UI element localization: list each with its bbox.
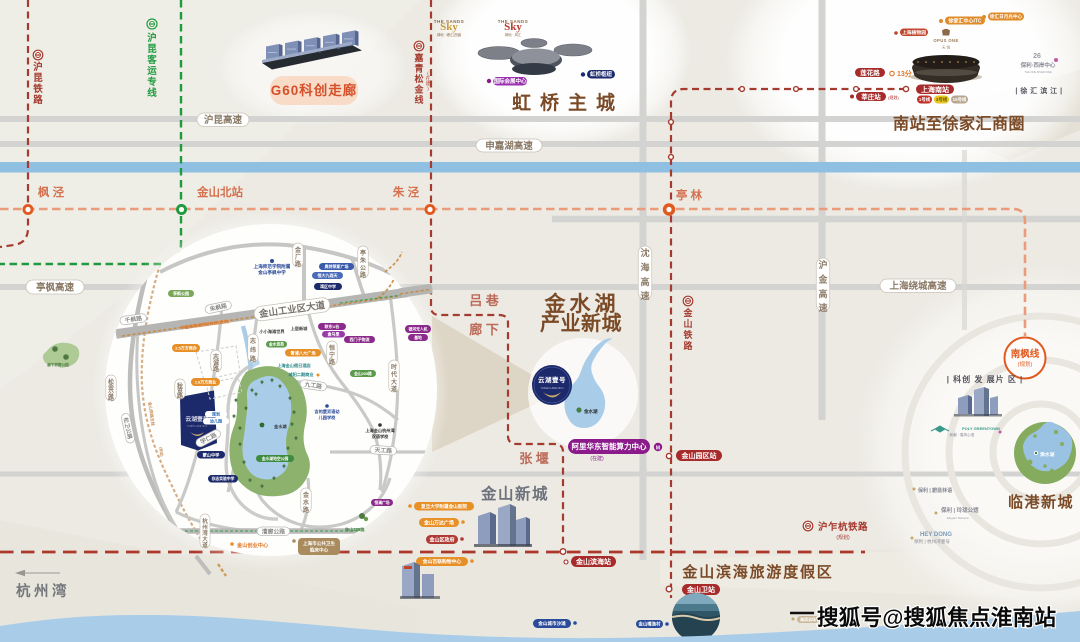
svg-text:金山万达广场: 金山万达广场 — [423, 519, 454, 526]
svg-text:M: M — [656, 446, 660, 452]
svg-text:金山创业中心: 金山创业中心 — [236, 541, 269, 549]
svg-text:莲花路: 莲花路 — [860, 68, 880, 77]
svg-text:幼儿园: 幼儿园 — [210, 418, 222, 424]
svg-text:绿地 · 风汇: 绿地 · 风汇 — [505, 32, 522, 37]
svg-text:Sky: Sky — [440, 21, 458, 33]
svg-text:恒澜广场: 恒澜广场 — [374, 500, 389, 505]
svg-text:莘庄站: 莘庄站 — [861, 92, 881, 101]
svg-text:金山卫站: 金山卫站 — [686, 585, 715, 594]
svg-text:复旦大学附属金山医院: 复旦大学附属金山医院 — [420, 503, 467, 510]
svg-text:申嘉湖高速: 申嘉湖高速 — [485, 140, 533, 152]
svg-text:(规划): (规划) — [1018, 360, 1033, 368]
svg-text:存志实验中学: 存志实验中学 — [211, 476, 235, 481]
svg-text:HEY DONG: HEY DONG — [920, 532, 952, 538]
svg-text:金山新城: 金山新城 — [480, 484, 549, 503]
svg-text:搜狐号@搜狐焦点淮南站: 搜狐号@搜狐焦点淮南站 — [817, 605, 1056, 630]
svg-text:金山嘴渔村: 金山嘴渔村 — [638, 621, 662, 628]
svg-text:沪昆高速: 沪昆高速 — [204, 114, 243, 126]
svg-text:保利 | 玲珑公馆: 保利 | 玲珑公馆 — [940, 506, 979, 514]
svg-text:临床中心: 临床中心 — [310, 547, 329, 554]
svg-text:金水湖: 金水湖 — [583, 408, 598, 415]
svg-text:沪昆客运专线: 沪昆客运专线 — [146, 32, 157, 99]
svg-text:POLY GREENTOWN: POLY GREENTOWN — [962, 426, 1000, 431]
svg-text:G60科创走廊: G60科创走廊 — [271, 82, 358, 98]
svg-text:盒马里: 盒马里 — [328, 331, 340, 337]
svg-text:西门子物流: 西门子物流 — [350, 336, 370, 342]
svg-text:| 徐 汇 滨 江 |: | 徐 汇 滨 江 | — [1015, 86, 1062, 95]
svg-text:13分: 13分 — [897, 69, 912, 78]
svg-text:保利 | 蔚蓝林语: 保利 | 蔚蓝林语 — [917, 487, 952, 494]
svg-text:青浦八大广场: 青浦八大广场 — [290, 349, 316, 356]
svg-text:滴水湖: 滴水湖 — [1039, 451, 1055, 458]
svg-text:天 悦: 天 悦 — [942, 45, 951, 50]
svg-text:绿地 · 峰汇|西宸: 绿地 · 峰汇|西宸 — [437, 32, 462, 37]
svg-text:亭 林: 亭 林 — [676, 188, 703, 202]
svg-text:杭州湾: 杭州湾 — [16, 582, 70, 600]
svg-text:规划: 规划 — [211, 411, 220, 417]
svg-text:虹桥主城: 虹桥主城 — [512, 91, 624, 114]
svg-text:金山区政府: 金山区政府 — [428, 536, 454, 543]
svg-text:联东U谷: 联东U谷 — [325, 323, 341, 329]
svg-text:和著 · 春风心语: 和著 · 春风心语 — [950, 432, 975, 437]
svg-text:吉的堡双语幼: 吉的堡双语幼 — [314, 408, 339, 415]
svg-text:张 堰: 张 堰 — [519, 451, 549, 466]
svg-text:| 科创 发 展片 区 |: | 科创 发 展片 区 | — [947, 374, 1024, 384]
svg-text:秋览路: 秋览路 — [177, 382, 184, 400]
svg-text:临港新城: 临港新城 — [1008, 493, 1074, 511]
svg-text:国际会展中心: 国际会展中心 — [493, 77, 527, 85]
svg-text:上海植物园: 上海植物园 — [902, 29, 926, 36]
svg-text:吕 巷: 吕 巷 — [469, 293, 500, 308]
svg-text:朱 泾: 朱 泾 — [392, 185, 420, 199]
svg-text:YUNHU LAKE NO.1: YUNHU LAKE NO.1 — [540, 386, 564, 390]
svg-text:志诚路: 志诚路 — [213, 353, 220, 373]
svg-text:金山亭枫中学: 金山亭枫中学 — [257, 269, 286, 276]
svg-text:沪乍杭铁路: 沪乍杭铁路 — [818, 521, 868, 533]
svg-text:徐家汇中心ITC: 徐家汇中心ITC — [947, 17, 981, 24]
svg-text:金山北站: 金山北站 — [196, 185, 243, 199]
svg-text:上海绕城高速: 上海绕城高速 — [889, 280, 947, 292]
svg-text:南站至徐家汇商圈: 南站至徐家汇商圈 — [893, 114, 1025, 133]
svg-text:产业新城: 产业新城 — [540, 311, 622, 335]
svg-text:亭枫公园: 亭枫公园 — [173, 290, 189, 296]
svg-text:恒宁路: 恒宁路 — [329, 344, 336, 366]
svg-text:时代大道: 时代大道 — [390, 363, 397, 393]
svg-text:1号线: 1号线 — [919, 96, 931, 103]
svg-text:基地: 基地 — [413, 335, 422, 340]
svg-text:(规划): (规划) — [836, 534, 850, 541]
svg-text:恒大九珑天: 恒大九珑天 — [318, 272, 339, 278]
svg-text:小小海滩世界: 小小海滩世界 — [259, 328, 285, 335]
svg-text:金水湖地空公园: 金水湖地空公园 — [261, 456, 289, 461]
svg-text:金山滨海旅游度假区: 金山滨海旅游度假区 — [681, 563, 833, 581]
svg-text:城阳二期商业: 城阳二期商业 — [288, 371, 314, 378]
svg-text:廊 下: 廊 下 — [469, 322, 499, 337]
svg-text:上海师范学院附属: 上海师范学院附属 — [254, 263, 291, 270]
svg-text:湾区中学: 湾区中学 — [320, 283, 336, 289]
svg-text:双语学校: 双语学校 — [372, 433, 390, 440]
svg-text:金水湖: 金水湖 — [273, 423, 287, 430]
svg-text:蒙山中学: 蒙山中学 — [203, 451, 221, 458]
svg-text:漕廊公路: 漕廊公路 — [261, 527, 285, 535]
svg-text:(在建): (在建) — [590, 455, 604, 462]
svg-text:3号线: 3号线 — [936, 96, 948, 103]
svg-text:保利 | 杭州湾壹号: 保利 | 杭州湾壹号 — [914, 538, 950, 545]
svg-text:2.8万方商业: 2.8万方商业 — [195, 378, 217, 384]
svg-text:廊下郊野公园: 廊下郊野公园 — [47, 362, 69, 367]
svg-text:金山百联购物中心: 金山百联购物中心 — [422, 558, 462, 565]
svg-text:金水路: 金水路 — [302, 491, 310, 514]
svg-text:26: 26 — [1033, 53, 1041, 60]
svg-text:朱山208路: 朱山208路 — [345, 526, 365, 533]
svg-text:虹桥枢纽: 虹桥枢纽 — [590, 70, 613, 78]
svg-text:松金公路: 松金公路 — [107, 378, 115, 402]
svg-text:金山园区站: 金山园区站 — [681, 451, 717, 460]
svg-text:上海南站: 上海南站 — [921, 85, 949, 94]
svg-text:徐汇日月光中心: 徐汇日月光中心 — [989, 13, 1023, 20]
svg-text:Elegant Mansion: Elegant Mansion — [947, 516, 970, 520]
svg-text:15号线: 15号线 — [953, 96, 967, 103]
svg-text:上居新城: 上居新城 — [291, 325, 309, 332]
svg-text:嘉青松金线: 嘉青松金线 — [413, 52, 424, 105]
svg-text:YUNHU LAKE NO.1: YUNHU LAKE NO.1 — [187, 425, 208, 428]
svg-text:南枫线: 南枫线 — [1011, 348, 1040, 360]
svg-text:金山滨海站: 金山滨海站 — [575, 557, 611, 566]
svg-text:(规划): (规划) — [888, 94, 899, 100]
svg-text:儿园学校: 儿园学校 — [318, 414, 337, 421]
svg-text:THE ONE RIVER SIDE: THE ONE RIVER SIDE — [1025, 70, 1052, 74]
svg-text:阿里华东智能算力中心: 阿里华东智能算力中心 — [572, 441, 647, 451]
svg-text:金厂路: 金厂路 — [294, 246, 302, 268]
svg-text:枫 泾: 枫 泾 — [38, 185, 65, 199]
svg-text:亭朱公路: 亭朱公路 — [360, 249, 367, 279]
svg-text:OPUS ONE: OPUS ONE — [933, 38, 958, 43]
svg-text:上海金山杭州湾: 上海金山杭州湾 — [365, 427, 395, 434]
svg-text:志纬路: 志纬路 — [250, 337, 257, 363]
svg-text:金山205路: 金山205路 — [353, 371, 372, 376]
svg-text:上海市公共卫生: 上海市公共卫生 — [303, 540, 336, 547]
svg-text:Sky: Sky — [504, 21, 522, 33]
svg-text:沪昆铁路: 沪昆铁路 — [33, 61, 43, 106]
svg-text:亭枫高速: 亭枫高速 — [36, 281, 75, 293]
svg-text:上海金山假日酒店: 上海金山假日酒店 — [277, 362, 311, 369]
svg-text:海滨浴场: 海滨浴场 — [800, 616, 816, 622]
svg-text:杭州湾大道: 杭州湾大道 — [201, 517, 208, 549]
svg-text:保利·西岸中心: 保利·西岸中心 — [1020, 61, 1056, 69]
svg-text:金山城市沙滩: 金山城市沙滩 — [537, 620, 566, 627]
svg-text:奥特莱斯广场: 奥特莱斯广场 — [324, 263, 349, 269]
svg-text:云湖壹号: 云湖壹号 — [538, 375, 566, 384]
svg-text:2.5万方商办: 2.5万方商办 — [175, 344, 197, 350]
svg-text:金水佳苑: 金水佳苑 — [268, 342, 284, 347]
svg-text:银河无人机: 银河无人机 — [409, 326, 428, 331]
